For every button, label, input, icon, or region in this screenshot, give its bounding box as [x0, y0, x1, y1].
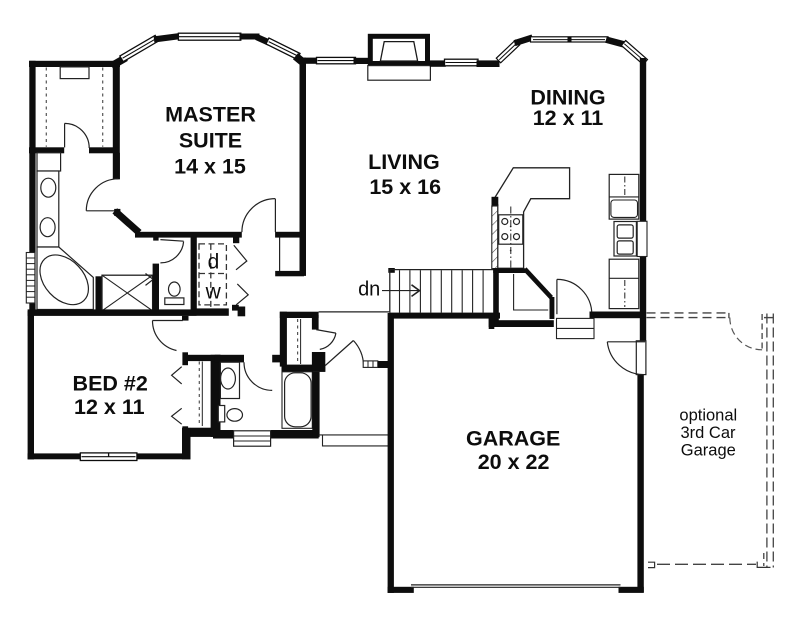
svg-text:14 x 15: 14 x 15 [174, 154, 246, 178]
svg-text:15 x 16: 15 x 16 [369, 175, 441, 199]
svg-text:MASTER: MASTER [165, 103, 256, 127]
svg-text:w: w [205, 280, 222, 303]
svg-text:d: d [208, 251, 220, 274]
svg-text:Garage: Garage [681, 442, 736, 460]
svg-text:optional: optional [679, 406, 737, 424]
svg-text:20 x 22: 20 x 22 [478, 450, 550, 474]
svg-text:3rd Car: 3rd Car [680, 424, 736, 442]
svg-text:GARAGE: GARAGE [466, 426, 560, 450]
svg-text:dn: dn [358, 279, 380, 301]
svg-text:SUITE: SUITE [179, 128, 242, 152]
svg-text:LIVING: LIVING [368, 150, 440, 174]
svg-text:12 x 11: 12 x 11 [533, 106, 604, 130]
svg-text:12 x 11: 12 x 11 [74, 395, 145, 419]
svg-text:BED #2: BED #2 [73, 371, 148, 395]
